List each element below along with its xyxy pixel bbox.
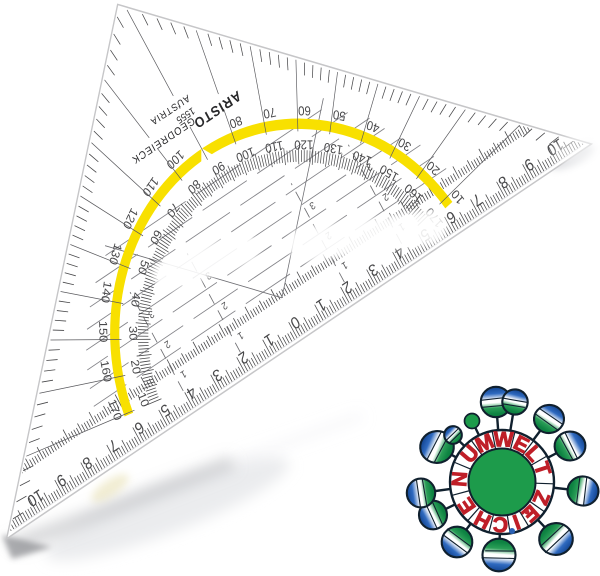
svg-text:150: 150 bbox=[96, 321, 110, 343]
svg-text:120: 120 bbox=[294, 137, 314, 152]
svg-text:130: 130 bbox=[323, 139, 344, 157]
svg-text:20: 20 bbox=[128, 358, 143, 375]
svg-text:70: 70 bbox=[262, 104, 277, 121]
svg-text:C: C bbox=[493, 512, 509, 536]
svg-text:110: 110 bbox=[264, 138, 285, 156]
svg-text:140: 140 bbox=[98, 280, 114, 304]
svg-text:50: 50 bbox=[332, 107, 347, 124]
svg-text:60: 60 bbox=[298, 103, 311, 118]
svg-text:40: 40 bbox=[128, 291, 143, 308]
svg-text:N: N bbox=[448, 471, 472, 488]
svg-text:30: 30 bbox=[126, 326, 139, 341]
